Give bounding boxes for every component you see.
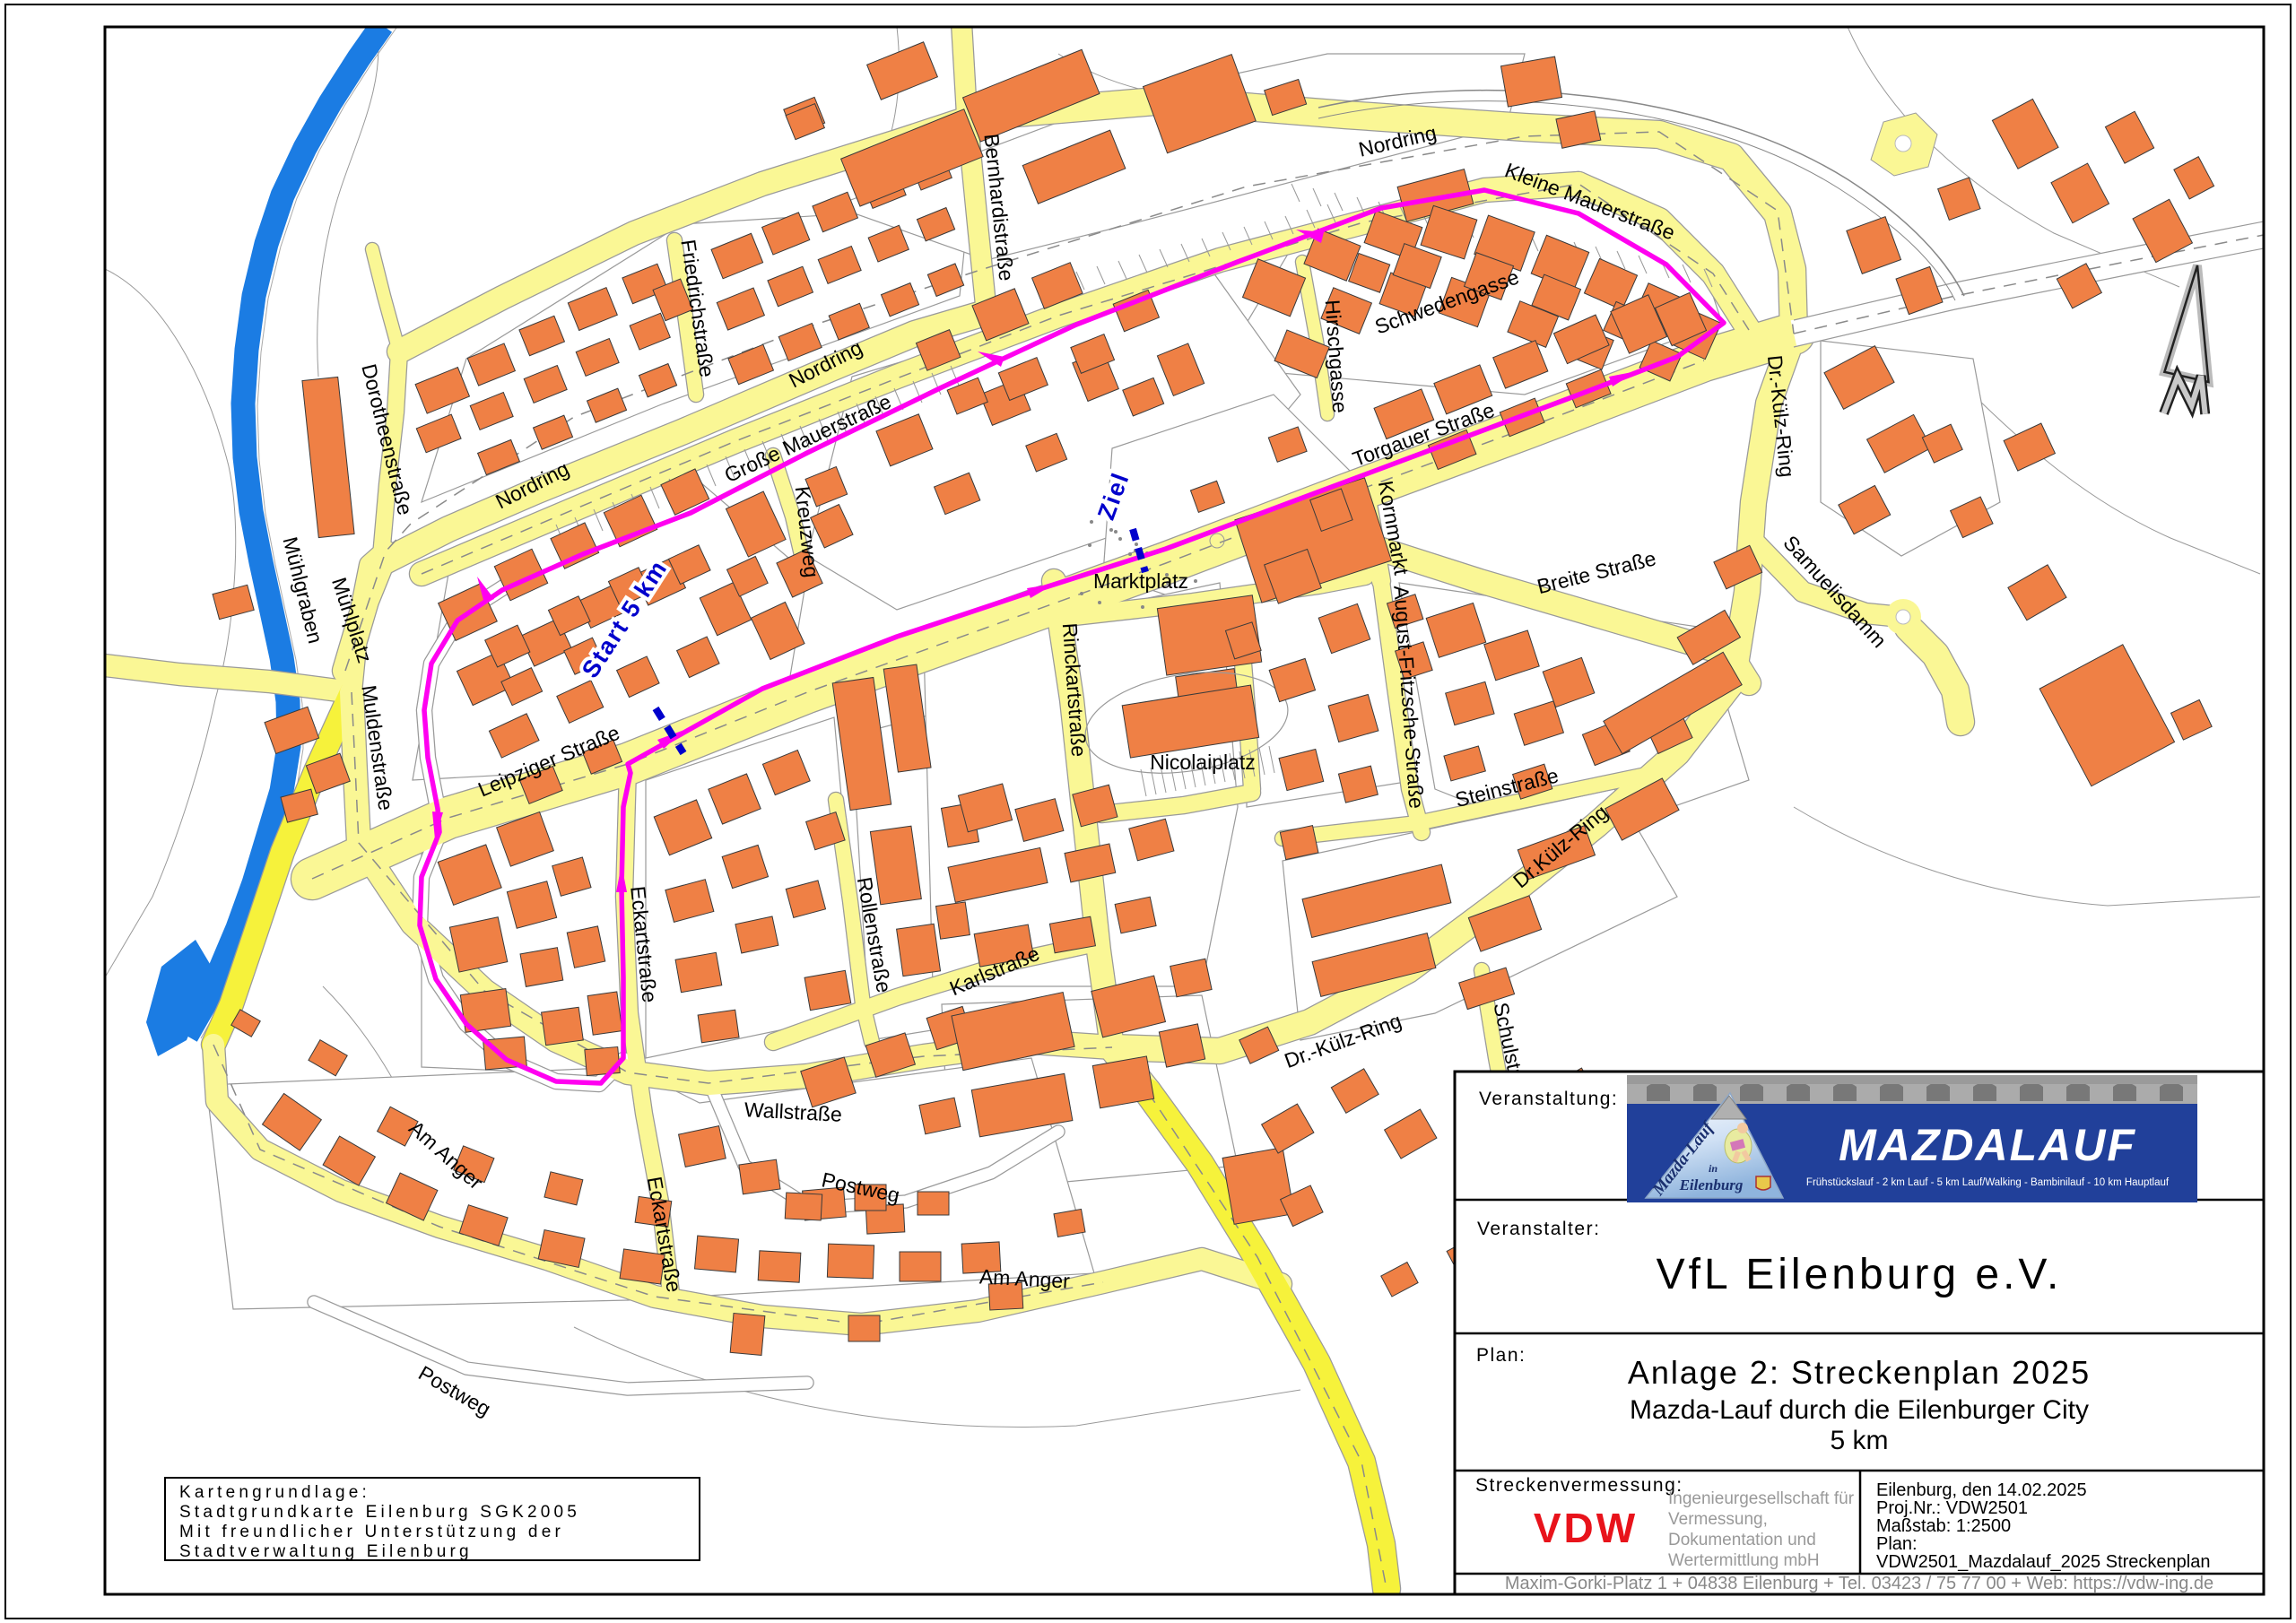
svg-text:Maxim-Gorki-Platz 1 + 04838 Ei: Maxim-Gorki-Platz 1 + 04838 Eilenburg + … [1505,1574,2213,1593]
svg-text:Eilenburg, den 14.02.2025: Eilenburg, den 14.02.2025 [1876,1480,2087,1500]
svg-text:Plan:: Plan: [1476,1345,1526,1366]
svg-text:VDW: VDW [1534,1505,1638,1551]
svg-text:Ingenieurgesellschaft für: Ingenieurgesellschaft für [1668,1489,1855,1508]
svg-text:Anlage 2: Streckenplan 2025: Anlage 2: Streckenplan 2025 [1628,1354,2091,1391]
svg-text:Am Anger: Am Anger [978,1264,1071,1292]
svg-text:Streckenvermessung:: Streckenvermessung: [1475,1475,1683,1496]
svg-text:Marktplatz: Marktplatz [1093,569,1188,593]
svg-text:MAZDALAUF: MAZDALAUF [1839,1120,2136,1170]
svg-text:Plan:: Plan: [1876,1534,1918,1554]
svg-text:Mazda-Lauf durch die Eilenburg: Mazda-Lauf durch die Eilenburger City [1630,1395,2089,1425]
svg-text:Veranstaltung:: Veranstaltung: [1479,1089,1618,1109]
svg-text:Vermessung,: Vermessung, [1668,1510,1768,1529]
svg-text:Frühstückslauf - 2 km Lauf - 5: Frühstückslauf - 2 km Lauf - 5 km Lauf/W… [1806,1177,2170,1188]
svg-text:Proj.Nr.: VDW2501: Proj.Nr.: VDW2501 [1876,1498,2028,1518]
svg-text:Dokumentation und: Dokumentation und [1668,1531,1816,1549]
svg-text:Stadtverwaltung Eilenburg: Stadtverwaltung Eilenburg [179,1542,473,1561]
svg-text:VfL Eilenburg e.V.: VfL Eilenburg e.V. [1657,1251,2063,1298]
svg-text:Nicolaiplatz: Nicolaiplatz [1150,751,1256,774]
svg-text:VDW2501_Mazdalauf_2025 Strecke: VDW2501_Mazdalauf_2025 Streckenplan [1876,1552,2210,1572]
svg-text:Mit freundlicher Unterstützung: Mit freundlicher Unterstützung der [179,1523,564,1541]
svg-text:5 km: 5 km [1830,1426,1888,1455]
svg-text:Maßstab: 1:2500: Maßstab: 1:2500 [1876,1516,2011,1536]
svg-text:Wertermittlung mbH: Wertermittlung mbH [1668,1551,1820,1570]
svg-text:Eilenburg: Eilenburg [1679,1176,1744,1193]
svg-text:in: in [1709,1162,1718,1175]
svg-text:Veranstalter:: Veranstalter: [1477,1219,1600,1239]
svg-text:Kartengrundlage:: Kartengrundlage: [179,1483,370,1502]
svg-text:Stadtgrundkarte Eilenburg SGK2: Stadtgrundkarte Eilenburg SGK2005 [179,1503,580,1522]
